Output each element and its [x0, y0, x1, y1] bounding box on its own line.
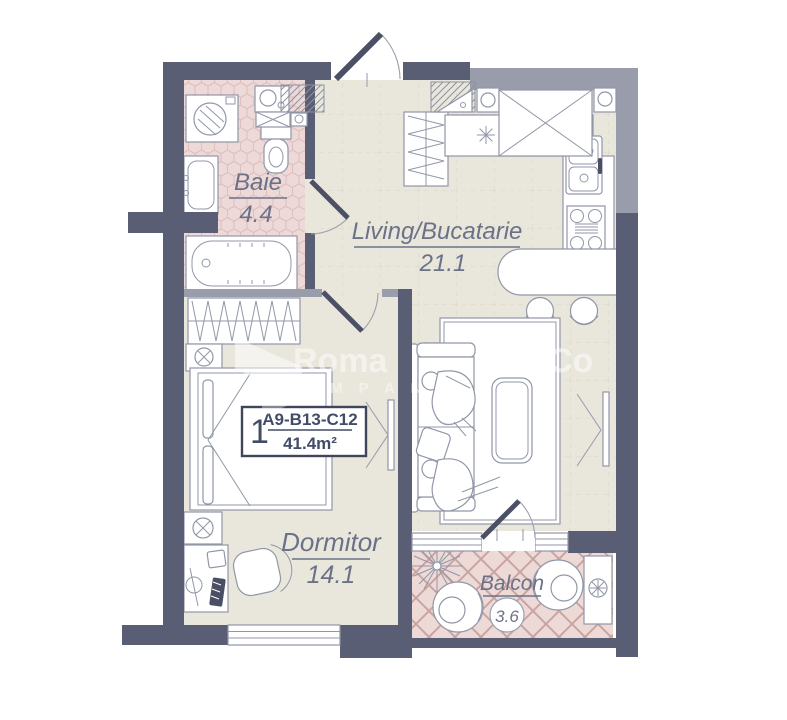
nightstand-icon: [186, 344, 222, 371]
left-wall: [163, 62, 184, 645]
watermark-text-fragment: Co: [548, 342, 593, 380]
bottom-wall-left: [122, 625, 228, 645]
floor-plan-page: N: [0, 0, 787, 720]
ventilation-shaft-icon: [431, 82, 475, 112]
bar-counter-icon: [498, 249, 616, 295]
living-area: 21.1: [419, 250, 467, 277]
left-wall-pier: [128, 212, 218, 233]
top-wall-right: [470, 68, 638, 90]
dormitor-label: Dormitor: [281, 527, 382, 557]
bathroom-vanity-sink-icon: [184, 156, 219, 214]
bedroom-window: [228, 625, 340, 645]
coffee-table-icon: [492, 378, 532, 463]
right-wall-upper: [616, 68, 638, 213]
entrance-door-icon: [331, 34, 403, 87]
balcon-area: 3.6: [495, 607, 519, 626]
balcon-label: Balcon: [480, 572, 544, 595]
baie-label: Baie: [234, 169, 282, 196]
baie-area: 4.4: [239, 201, 272, 228]
unit-code: A9-B13-C12: [262, 410, 357, 429]
nightstand-icon: [184, 512, 222, 544]
bar-stool-icon: [570, 298, 598, 325]
right-wall-lower: [616, 213, 638, 657]
balcony-wall-block: [568, 531, 616, 553]
toilet-icon: [261, 126, 291, 173]
stove-icon: [567, 206, 605, 253]
floor-plan-svg: N: [0, 0, 787, 720]
bedroom-partition-left: [315, 289, 322, 297]
top-wall-left: [163, 62, 331, 80]
extractor-hood-icon: [477, 126, 495, 144]
bedroom-living-divider-wall: [398, 289, 412, 645]
watermark-text-fragment: Roma: [293, 342, 389, 380]
ac-unit-icon: [584, 556, 612, 624]
balcony-armchair-icon: [433, 582, 483, 632]
bathtub-icon: [186, 236, 297, 291]
balcony-railing-wall: [412, 638, 616, 648]
bottom-wall-right: [340, 625, 412, 658]
dormitor-area: 14.1: [307, 561, 356, 589]
coat-closet-icon: [404, 112, 448, 186]
washing-machine-icon: [186, 95, 238, 142]
bathroom-bottom-partition: [184, 289, 315, 297]
unit-label-box: 1 A9-B13-C12 41.4m²: [242, 407, 366, 456]
unit-area: 41.4m²: [283, 434, 337, 453]
desk-icon: [184, 545, 228, 612]
top-wall-mid: [403, 62, 470, 80]
bathroom-wall-lower: [305, 233, 315, 297]
watermark-text-line2: M P A N I: [330, 380, 448, 397]
wardrobe-icon: [188, 298, 300, 344]
living-label: Living/Bucatarie: [352, 218, 523, 245]
